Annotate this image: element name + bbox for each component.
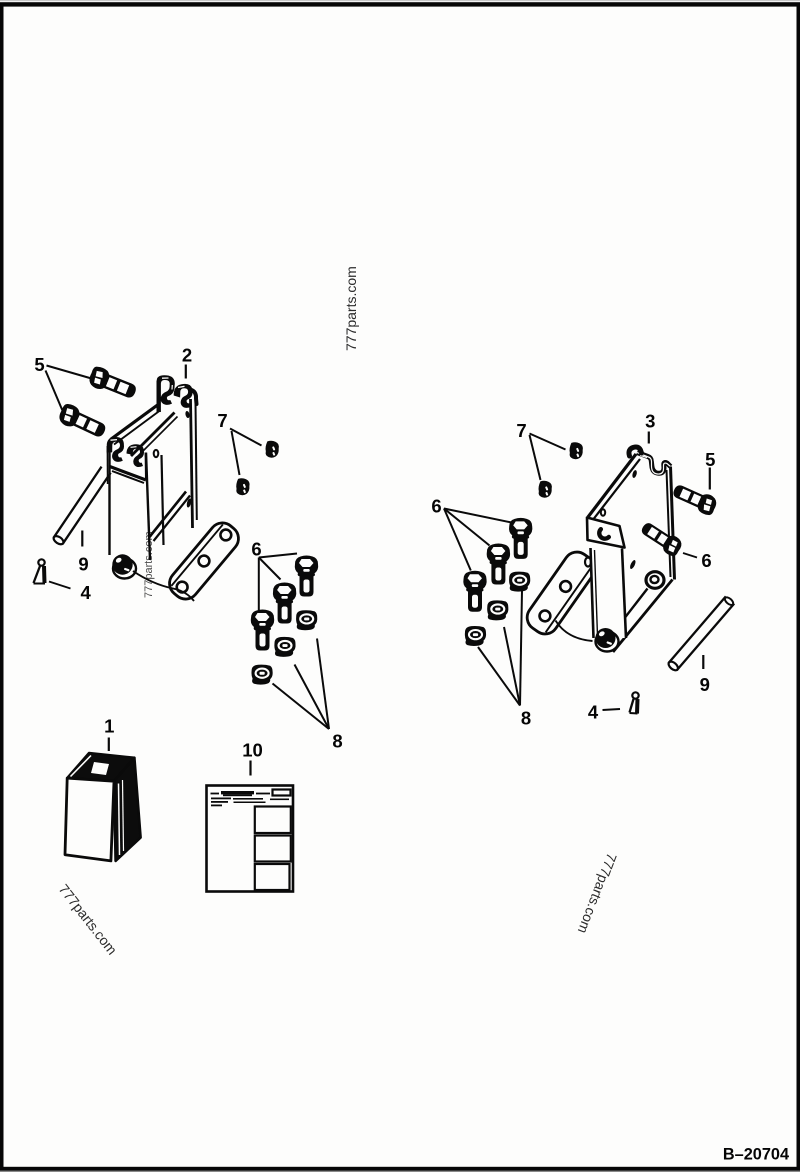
svg-text:10: 10	[242, 740, 263, 761]
svg-text:7: 7	[217, 410, 227, 431]
svg-text:777parts.com: 777parts.com	[56, 881, 121, 958]
svg-text:6: 6	[251, 539, 261, 560]
svg-text:8: 8	[332, 731, 342, 752]
svg-text:8: 8	[521, 708, 531, 729]
svg-text:3: 3	[645, 411, 655, 432]
svg-text:6: 6	[701, 550, 711, 571]
svg-text:2: 2	[182, 345, 192, 366]
svg-text:5: 5	[34, 354, 44, 375]
svg-text:4: 4	[588, 702, 599, 723]
svg-text:777parts.com: 777parts.com	[343, 266, 359, 351]
svg-text:7: 7	[516, 420, 526, 441]
svg-text:4: 4	[81, 582, 92, 603]
svg-text:9: 9	[78, 554, 88, 575]
svg-text:B–20704: B–20704	[723, 1146, 789, 1164]
svg-text:5: 5	[705, 449, 715, 470]
svg-text:6: 6	[431, 496, 441, 517]
svg-text:1: 1	[104, 716, 114, 737]
svg-text:777parts.com: 777parts.com	[575, 851, 620, 936]
svg-text:9: 9	[700, 674, 710, 695]
